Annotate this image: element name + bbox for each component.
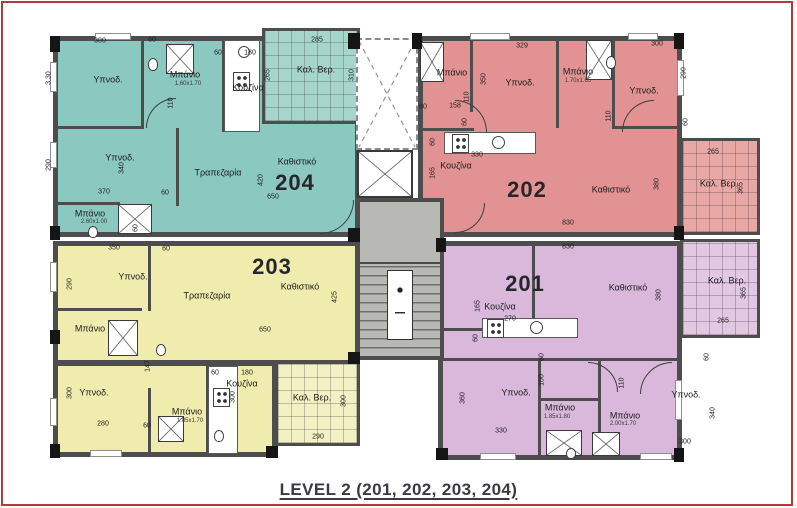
apartment-201-region [438,241,682,460]
dimension-label: 110 [606,110,613,121]
column [348,228,360,242]
dimension-label: 330 [471,152,483,159]
dimension-label: 300 [94,38,106,45]
dimension-label: 290 [681,67,688,79]
stove-icon [452,134,469,153]
dimension-label: 165 [430,167,437,179]
fixture-size-label: 1.85x1.70 [177,418,203,424]
dimension-label: 300 [651,41,663,48]
dimension-label: 60 [211,370,219,377]
apartment-number: 203 [252,256,292,278]
dimension-label: 300 [67,387,74,399]
dimension-label: 60 [419,104,427,111]
shaft-cross-icon [358,40,416,148]
column [348,352,360,364]
dimension-label: 330 [495,428,507,435]
dimension-label: 830 [562,244,574,251]
column [412,33,422,49]
floor-plan-page: 204202203201Υπνοδ.Υπνοδ.Μπάνιο1.60x1.70Κ… [0,0,797,508]
dimension-label: 310 [349,69,356,81]
interior-wall [58,308,142,311]
room-label: Υπνοδ. [118,273,147,282]
dimension-label: 420 [258,174,265,186]
apartment-203-region [53,241,360,365]
dimension-label: 147 [145,360,152,372]
interior-wall [538,398,600,401]
dimension-label: 60 [683,118,690,126]
window [470,33,510,40]
dimension-label: 285 [311,37,323,44]
elevator-shaft [356,38,418,150]
room-label: Μπάνιο [75,210,105,219]
toilet-icon [606,56,616,69]
toilet-icon [148,58,158,71]
sink-icon [530,321,543,334]
column [50,330,60,344]
dimension-label: 60 [161,190,169,197]
window [50,262,57,292]
room-label: Μπάνιο [75,325,105,334]
column [348,33,360,49]
dimension-label: 365 [738,182,745,194]
toilet-icon [156,344,166,356]
dimension-label: 425 [332,291,339,303]
room-label: Υπνοδ. [93,76,122,85]
floor-plan: 204202203201Υπνοδ.Υπνοδ.Μπάνιο1.60x1.70Κ… [0,0,797,508]
room-label: Υπνοδ. [629,87,658,96]
dimension-label: 650 [259,327,271,334]
dimension-label: 290 [46,159,53,171]
room-label: Τραπεζαρία [184,292,231,301]
toilet-icon [214,430,224,442]
column [436,238,446,252]
apartment-number: 202 [507,179,547,201]
dimension-label: 380 [656,289,663,301]
window [640,453,672,460]
stair-lift-icon [387,270,413,340]
room-label: Υπνοδ. [671,391,700,400]
interior-wall [442,358,680,361]
apartment-number: 204 [275,172,315,194]
room-label: Κουζίνα [226,380,258,389]
dimension-label: 329 [516,43,528,50]
dimension-label: 350 [481,73,488,85]
room-label: Μπάνιο [170,71,200,80]
dimension-label: 180 [244,50,256,57]
room-label: Τραπεζαρία [195,169,242,178]
room-label: Υπνοδ. [501,389,530,398]
dimension-label: 60 [143,423,151,430]
sink-icon [492,136,505,149]
elevator-icon [357,150,413,198]
dimension-label: 100 [539,374,546,386]
dimension-label: 3.30 [46,71,53,85]
drawing-title: LEVEL 2 (201, 202, 203, 204) [0,480,797,500]
dimension-label: 280 [97,421,109,428]
fixture-size-label: 1.60x1.70 [175,81,201,87]
column [266,446,278,458]
dimension-label: 180 [241,370,253,377]
room-label: Καλ. Βερ. [293,394,331,403]
dimension-label: 290 [67,278,74,290]
room-label: Υπνοδ. [79,389,108,398]
room-label: Καθιστικό [281,283,320,292]
dimension-label: 370 [98,189,110,196]
room-label: Καλ. Βερ. [297,66,335,75]
dimension-label: 360 [460,392,467,404]
room-label: Μπάνιο [437,69,467,78]
stove-icon [213,388,230,407]
dimension-label: 60 [462,118,469,126]
dimension-label: 60 [148,37,156,44]
window [675,380,682,420]
column [674,226,684,240]
window [90,450,122,457]
dimension-label: 60 [473,334,480,342]
dimension-label: 300 [341,395,348,407]
room-label: Καλ. Βερ. [700,180,738,189]
shower-icon [546,430,582,456]
interior-wall [556,40,559,128]
dimension-label: 290 [312,434,324,441]
dimension-label: 110 [168,97,175,108]
stove-icon [487,319,504,338]
dimension-label: 830 [562,220,574,227]
dimension-label: 110 [619,377,626,388]
interior-wall [148,243,151,311]
dimension-label: 270 [504,316,516,323]
dimension-label: 60 [430,138,437,146]
interior-wall [176,128,179,206]
room-label: Μπάνιο [610,412,640,421]
room-label: Κουζίνα [440,162,472,171]
dimension-label: 60 [539,353,546,361]
shower-icon [108,320,138,356]
dimension-label: 350 [108,245,120,252]
fixture-size-label: 2.60x1.00 [81,219,107,225]
dimension-label: 300 [679,439,691,446]
column [50,36,60,52]
room-label: Κουζίνα [232,84,264,93]
dimension-label: 265 [717,318,729,325]
room-label: Καλ. Βερ. [708,277,746,286]
dimension-label: 340 [710,407,717,419]
dimension-label: 60 [162,246,170,253]
toilet-icon [566,448,576,459]
interior-wall [141,40,144,128]
dimension-label: 60 [214,50,222,57]
window [480,453,516,460]
interior-wall [58,202,120,205]
column [50,444,60,458]
toilet-icon [88,226,98,238]
column [50,226,60,240]
dimension-label: 365 [741,287,748,299]
room-label: Μπάνιο [545,404,575,413]
dimension-label: 265 [265,69,272,81]
room-label: Καθιστικό [609,284,648,293]
window [50,398,57,426]
window [628,33,658,40]
apartment-number: 201 [505,273,545,295]
dimension-label: 158 [449,103,461,110]
fixture-size-label: 2.00x1.70 [610,421,636,427]
room-label: Μπάνιο [172,408,202,417]
dimension-label: 265 [707,149,719,156]
interior-wall [58,126,144,129]
column [436,448,448,460]
room-label: Μπάνιο [563,68,593,77]
room-label: Κουζίνα [484,303,516,312]
dimension-label: 110 [464,91,471,102]
dimension-label: 165 [475,300,482,312]
dimension-label: 340 [119,162,126,174]
fixture-size-label: 1.85x1.80 [544,414,570,420]
room-label: Καθιστικό [278,158,317,167]
shower-icon [592,432,620,456]
room-label: Καθιστικό [592,186,631,195]
stair-landing-edge [358,262,442,264]
room-label: Υπνοδ. [505,79,534,88]
dimension-label: 380 [654,178,661,190]
dimension-label: 650 [267,194,279,201]
column [674,33,684,49]
dimension-label: 60 [133,224,140,232]
dimension-label: 300 [230,391,237,403]
dimension-label: 60 [704,353,711,361]
column [674,448,684,462]
fixture-size-label: 1.70x1.65 [565,78,591,84]
